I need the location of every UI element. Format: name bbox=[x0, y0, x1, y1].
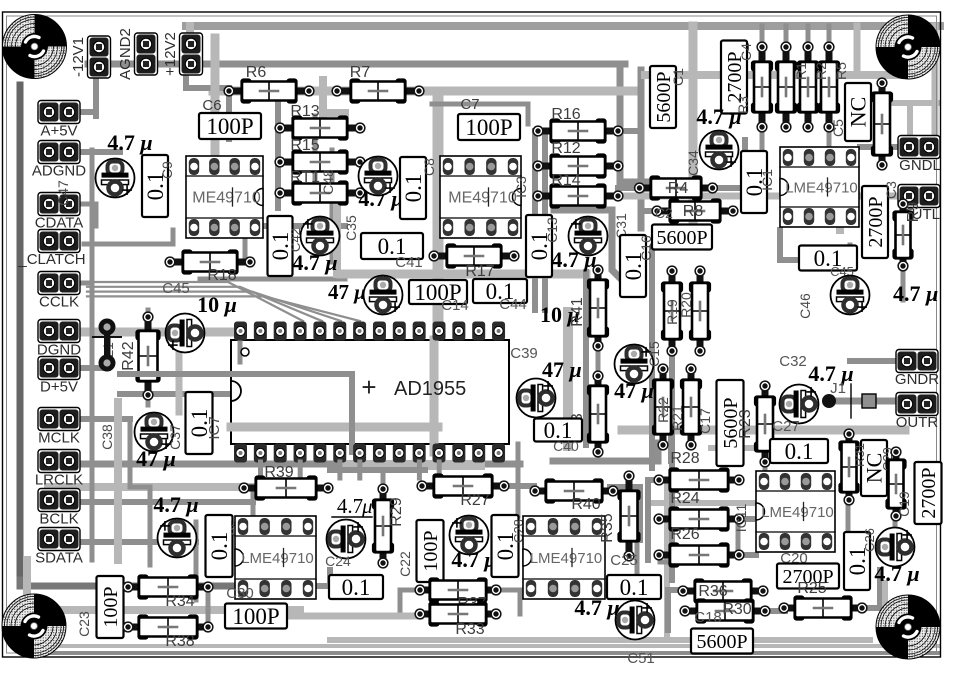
svg-text:NC: NC bbox=[845, 97, 870, 128]
svg-text:C5: C5 bbox=[830, 119, 846, 137]
svg-text:IC3: IC3 bbox=[513, 176, 529, 198]
svg-text:R36: R36 bbox=[698, 583, 727, 600]
svg-text:R33: R33 bbox=[455, 621, 484, 638]
svg-text:R9: R9 bbox=[905, 202, 922, 223]
svg-text:47 μ: 47 μ bbox=[542, 357, 582, 382]
svg-text:0.1: 0.1 bbox=[342, 575, 371, 600]
svg-text:100P: 100P bbox=[232, 604, 279, 629]
svg-text:4.7 μ: 4.7 μ bbox=[574, 595, 619, 620]
svg-text:LME49710: LME49710 bbox=[530, 550, 603, 567]
svg-text:LME49710: LME49710 bbox=[241, 550, 314, 567]
svg-text:C8: C8 bbox=[421, 158, 437, 176]
svg-text:47 μ: 47 μ bbox=[328, 280, 366, 304]
svg-text:R16: R16 bbox=[551, 106, 580, 123]
svg-text:C51: C51 bbox=[627, 650, 655, 667]
svg-text:C9: C9 bbox=[159, 161, 175, 179]
svg-text:C15: C15 bbox=[646, 341, 662, 367]
svg-text:SDATA: SDATA bbox=[35, 550, 83, 567]
svg-text:R42: R42 bbox=[120, 341, 137, 370]
svg-text:C40: C40 bbox=[553, 438, 579, 454]
svg-text:C34: C34 bbox=[685, 150, 701, 176]
svg-text:100P: 100P bbox=[100, 586, 122, 627]
svg-text:4.7 μ: 4.7 μ bbox=[107, 130, 152, 155]
svg-text:C35: C35 bbox=[343, 215, 359, 241]
svg-text:R4: R4 bbox=[668, 180, 689, 197]
svg-text:_CLATCH: _CLATCH bbox=[17, 251, 85, 268]
svg-text:LME49710: LME49710 bbox=[761, 504, 834, 521]
svg-text:R24: R24 bbox=[670, 490, 699, 507]
svg-text:C23: C23 bbox=[76, 611, 92, 637]
svg-text:R12: R12 bbox=[551, 140, 580, 157]
svg-text:R13: R13 bbox=[290, 103, 319, 120]
svg-text:MCLK: MCLK bbox=[38, 430, 80, 447]
svg-text:C18: C18 bbox=[694, 609, 722, 626]
svg-text:OUTR: OUTR bbox=[896, 414, 939, 431]
svg-text:C38: C38 bbox=[99, 424, 115, 450]
svg-text:ADGND: ADGND bbox=[32, 163, 86, 180]
svg-text:C6: C6 bbox=[202, 97, 221, 114]
svg-text:C2: C2 bbox=[655, 205, 673, 221]
svg-text:0.1: 0.1 bbox=[785, 439, 814, 464]
svg-text:R15: R15 bbox=[290, 137, 319, 154]
svg-text:R14: R14 bbox=[551, 172, 580, 189]
svg-text:4.7 μ: 4.7 μ bbox=[893, 281, 938, 306]
svg-text:CCLK: CCLK bbox=[39, 294, 79, 311]
svg-text:GNDL: GNDL bbox=[899, 157, 941, 174]
svg-text:R18: R18 bbox=[207, 267, 236, 284]
svg-text:LME49710: LME49710 bbox=[785, 179, 858, 196]
svg-text:R23: R23 bbox=[737, 409, 754, 438]
svg-text:4.7 μ: 4.7 μ bbox=[292, 250, 337, 275]
svg-text:10 μ: 10 μ bbox=[197, 292, 237, 317]
svg-text:R1: R1 bbox=[793, 62, 809, 80]
svg-text:AD1955: AD1955 bbox=[394, 378, 466, 400]
svg-text:C39: C39 bbox=[510, 345, 538, 362]
svg-text:C46: C46 bbox=[797, 293, 813, 319]
svg-text:μ: μ bbox=[361, 494, 373, 518]
svg-text:R35: R35 bbox=[599, 513, 616, 542]
svg-text:R27: R27 bbox=[460, 492, 489, 509]
svg-text:R17: R17 bbox=[465, 263, 494, 280]
svg-text:0.1: 0.1 bbox=[620, 575, 649, 600]
svg-text:100P: 100P bbox=[465, 115, 512, 140]
svg-text:C1: C1 bbox=[670, 68, 686, 86]
svg-text:C32: C32 bbox=[779, 353, 807, 370]
svg-text:C44: C44 bbox=[499, 296, 527, 313]
svg-text:C19: C19 bbox=[896, 491, 912, 517]
svg-text:+: + bbox=[361, 372, 376, 402]
svg-text:C24: C24 bbox=[325, 553, 351, 569]
svg-text:R20: R20 bbox=[678, 292, 694, 318]
svg-text:BCLK: BCLK bbox=[39, 511, 78, 528]
svg-text:R25: R25 bbox=[797, 580, 826, 597]
svg-text:AGND2: AGND2 bbox=[117, 28, 134, 80]
svg-text:C3: C3 bbox=[883, 181, 899, 199]
svg-text:R30: R30 bbox=[722, 601, 751, 618]
svg-text:GNDR: GNDR bbox=[895, 371, 939, 388]
svg-text:R34: R34 bbox=[165, 593, 194, 610]
svg-text:0.1: 0.1 bbox=[401, 174, 426, 203]
svg-text:4.7: 4.7 bbox=[337, 494, 363, 518]
svg-text:R8: R8 bbox=[683, 203, 704, 220]
svg-text:5600P: 5600P bbox=[656, 227, 707, 249]
svg-text:C22: C22 bbox=[397, 551, 413, 577]
svg-text:47 μ: 47 μ bbox=[614, 378, 654, 403]
svg-text:4.7 μ: 4.7 μ bbox=[153, 492, 198, 517]
svg-text:4.7 μ: 4.7 μ bbox=[696, 104, 741, 129]
svg-text:2700P: 2700P bbox=[865, 196, 887, 247]
svg-text:R26: R26 bbox=[670, 526, 699, 543]
svg-text:R31: R31 bbox=[852, 443, 867, 467]
svg-text:R21: R21 bbox=[669, 405, 685, 431]
svg-text:5600P: 5600P bbox=[696, 631, 747, 653]
svg-text:C41: C41 bbox=[395, 254, 423, 271]
svg-text:RT1: RT1 bbox=[290, 169, 320, 186]
svg-text:+12V2: +12V2 bbox=[162, 32, 179, 76]
svg-text:R28: R28 bbox=[670, 450, 699, 467]
svg-text:C30: C30 bbox=[226, 585, 254, 602]
svg-text:D+5V: D+5V bbox=[40, 379, 78, 396]
svg-text:100P: 100P bbox=[420, 530, 442, 571]
svg-text:100P: 100P bbox=[206, 114, 253, 139]
svg-text:C48: C48 bbox=[320, 169, 336, 195]
svg-text:-12V1: -12V1 bbox=[70, 37, 87, 77]
svg-text:C7: C7 bbox=[460, 96, 479, 113]
svg-text:2700P: 2700P bbox=[918, 467, 940, 518]
svg-text:IC11: IC11 bbox=[733, 504, 749, 533]
svg-text:C14: C14 bbox=[441, 297, 469, 314]
svg-text:ME49710: ME49710 bbox=[448, 190, 517, 207]
svg-text:R7: R7 bbox=[350, 64, 371, 81]
svg-text:C13: C13 bbox=[544, 217, 560, 243]
svg-text:IC1: IC1 bbox=[759, 169, 775, 191]
svg-text:J1: J1 bbox=[830, 380, 846, 397]
svg-text:A+5V: A+5V bbox=[40, 123, 77, 140]
svg-text:C25: C25 bbox=[610, 552, 638, 569]
svg-text:LRCLK: LRCLK bbox=[35, 472, 83, 489]
svg-text:R6: R6 bbox=[246, 64, 267, 81]
svg-text:C4: C4 bbox=[738, 43, 754, 61]
svg-text:R5: R5 bbox=[833, 62, 849, 80]
svg-text:R39: R39 bbox=[264, 464, 293, 481]
svg-text:IC7: IC7 bbox=[206, 416, 223, 439]
svg-text:R2: R2 bbox=[813, 62, 829, 80]
svg-text:ME49710: ME49710 bbox=[192, 190, 261, 207]
svg-text:C47: C47 bbox=[55, 180, 71, 206]
svg-text:C17: C17 bbox=[697, 408, 713, 434]
svg-text:R29: R29 bbox=[388, 497, 405, 526]
svg-text:R41: R41 bbox=[569, 297, 586, 326]
svg-text:C27: C27 bbox=[772, 418, 800, 435]
svg-text:R38: R38 bbox=[165, 633, 194, 650]
svg-text:C37: C37 bbox=[167, 424, 183, 450]
svg-text:C45: C45 bbox=[162, 280, 190, 297]
svg-text:R40: R40 bbox=[571, 496, 600, 513]
